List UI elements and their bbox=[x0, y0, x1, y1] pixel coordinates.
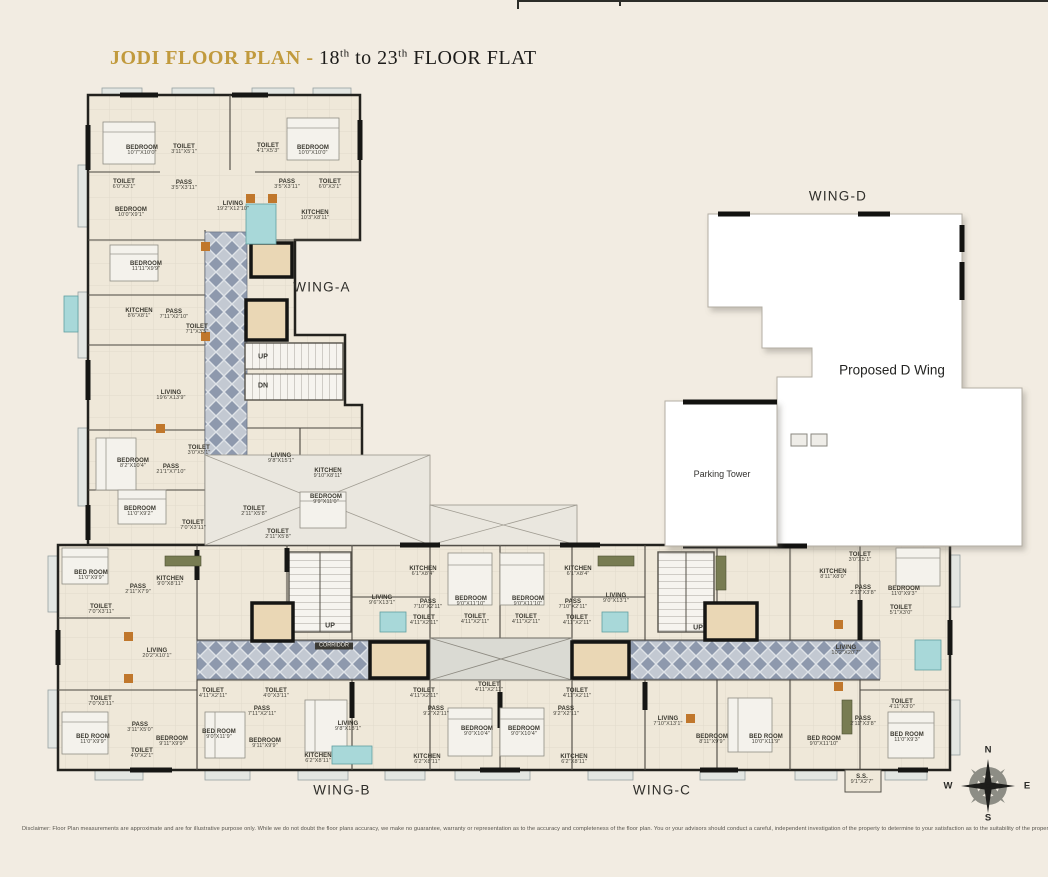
room-label: LIVING10'2"X20'7" bbox=[831, 645, 860, 657]
compass-east: E bbox=[1024, 781, 1030, 792]
room-label: TOILET4'11"X2'11" bbox=[512, 614, 540, 626]
compass-north: N bbox=[985, 745, 992, 756]
room-label: LIVING9'0"X13'1" bbox=[603, 593, 629, 605]
room-label: KITCHEN6'1"X8'4" bbox=[564, 566, 591, 578]
room-label: BEDROOM11'0"X9'3" bbox=[888, 586, 920, 598]
room-label: LIVING19'6"X13'9" bbox=[156, 390, 185, 402]
room-label: PASS3'5"X3'11" bbox=[274, 179, 300, 191]
room-label: BED ROOM11'0"X9'9" bbox=[76, 734, 110, 746]
room-label: TOILET7'0"X3'11" bbox=[88, 604, 114, 616]
room-label: KITCHEN6'2"X8'11" bbox=[560, 754, 587, 766]
room-label: TOILET4'11"X2'11" bbox=[563, 615, 591, 627]
room-label: BEDROOM8'2"X10'4" bbox=[117, 458, 149, 470]
room-label: TOILET3'11"X5'1" bbox=[171, 144, 197, 156]
room-label: TOILET2'11"X5'8" bbox=[265, 529, 291, 541]
room-label: TOILET4'0"X3'11" bbox=[263, 688, 289, 700]
room-label: BEDROOM10'0"X10'0" bbox=[297, 145, 329, 157]
room-label: BEDROOM9'0"X10'4" bbox=[461, 726, 493, 738]
room-label: KITCHEN9'10"X8'11" bbox=[314, 468, 343, 480]
room-label: TOILET7'0"X3'11" bbox=[88, 696, 114, 708]
stairs-up-label: UP bbox=[258, 354, 268, 361]
room-label: LIVING19'2"X12'10" bbox=[217, 201, 249, 213]
room-label: LIVING7'10"X13'1" bbox=[653, 716, 682, 728]
stairs-up-label: UP bbox=[325, 623, 335, 630]
room-label: TOILET4'1"X5'3" bbox=[257, 143, 280, 155]
room-label: TOILET6'0"X3'1" bbox=[319, 179, 342, 191]
compass-south: S bbox=[985, 813, 991, 824]
room-label: LIVING9'6"X13'1" bbox=[369, 595, 395, 607]
compass-west: W bbox=[944, 781, 953, 792]
disclaimer-text: Disclaimer: Floor Plan measurements are … bbox=[22, 826, 1048, 832]
room-label: BEDROOM11'11"X9'9" bbox=[130, 261, 162, 273]
room-label: BED ROOM9'0"X11'10" bbox=[807, 736, 841, 748]
room-label: TOILET4'11"X2'11" bbox=[563, 688, 591, 700]
room-label: BEDROOM11'0"X9'2" bbox=[124, 506, 156, 518]
room-label: KITCHEN6'2"X8'11" bbox=[304, 753, 331, 765]
room-label: PASS2'11"X7'9" bbox=[125, 584, 151, 596]
room-label: TOILET7'0"X3'11" bbox=[180, 520, 206, 532]
room-label: BEDROOM9'9"X11'0" bbox=[310, 494, 342, 506]
room-label: PASS21'1"X7'10" bbox=[156, 464, 185, 476]
room-label: BED ROOM11'0"X9'9" bbox=[74, 570, 108, 582]
room-label: PASS2'11"X3'8" bbox=[850, 716, 876, 728]
room-label: KITCHEN6'2"X8'11" bbox=[413, 754, 440, 766]
room-label: BEDROOM9'11"X9'9" bbox=[249, 738, 281, 750]
room-label: TOILET5'1"X3'0" bbox=[890, 605, 913, 617]
wing-a-label: WING-A bbox=[293, 280, 350, 295]
room-label: LIVING9'8"X13'1" bbox=[335, 721, 361, 733]
room-label: TOILET4'11"X2'11" bbox=[410, 615, 438, 627]
room-label: TOILET3'0"X5'1" bbox=[188, 445, 211, 457]
room-label: TOILET4'11"X2'11" bbox=[475, 682, 503, 694]
wing-c-label: WING-C bbox=[633, 783, 691, 798]
room-label: BEDROOM9'0"X10'4" bbox=[508, 726, 540, 738]
room-label: KITCHEN9'0"X8'11" bbox=[156, 576, 183, 588]
room-label: LIVING9'8"X15'1" bbox=[268, 453, 294, 465]
room-label: TOILET4'0"X2'1" bbox=[131, 748, 154, 760]
room-label: BEDROOM10'7"X10'0" bbox=[126, 145, 158, 157]
room-label: TOILET7'1"X3'5" bbox=[186, 324, 209, 336]
room-label: TOILET4'11"X2'11" bbox=[199, 688, 227, 700]
room-label: BED ROOM10'0"X11'9" bbox=[749, 734, 783, 746]
room-label: KITCHEN8'11"X8'0" bbox=[819, 569, 846, 581]
room-label: S.S.9'1"X2'7" bbox=[851, 774, 874, 786]
room-label: TOILET4'11"X3'0" bbox=[889, 699, 915, 711]
room-label: PASS7'10"X2'11" bbox=[414, 599, 443, 611]
room-label: BEDROOM9'0"X11'10" bbox=[455, 596, 487, 608]
parking-tower-label: Parking Tower bbox=[694, 469, 751, 479]
wing-d-label: WING-D bbox=[809, 189, 867, 204]
room-label: PASS7'11"X2'11" bbox=[248, 706, 276, 718]
room-label: TOILET6'0"X3'1" bbox=[113, 179, 136, 191]
room-label: BEDROOM8'11"X9'9" bbox=[696, 734, 728, 746]
room-label: PASS9'2"X2'11" bbox=[423, 706, 449, 718]
room-label: BEDROOM9'11"X9'9" bbox=[156, 736, 188, 748]
room-label: KITCHEN10'3"X8'11" bbox=[301, 210, 330, 222]
room-label: PASS3'11"X5'0" bbox=[127, 722, 153, 734]
floor-plan-page: JODI FLOOR PLAN - 18th to 23th FLOOR FLA… bbox=[0, 0, 1048, 877]
room-label: PASS2'11"X3'8" bbox=[850, 585, 876, 597]
plan-labels: WING-AWING-BWING-CWING-DProposed D WingP… bbox=[0, 0, 1048, 877]
room-label: PASS7'11"X2'10" bbox=[160, 309, 189, 321]
room-label: TOILET4'11"X2'11" bbox=[461, 614, 489, 626]
stairs-up-label: UP bbox=[693, 625, 703, 632]
wing-b-label: WING-B bbox=[313, 783, 370, 798]
room-label: LIVING20'2"X10'1" bbox=[142, 648, 171, 660]
proposed-d-wing-label: Proposed D Wing bbox=[839, 363, 945, 378]
room-label: TOILET4'11"X2'11" bbox=[410, 688, 438, 700]
room-label: BEDROOM9'0"X11'10" bbox=[512, 596, 544, 608]
room-label: PASS7'10"X2'11" bbox=[559, 599, 588, 611]
room-label: BED ROOM11'0"X9'3" bbox=[890, 732, 924, 744]
room-label: BED ROOM9'0"X11'9" bbox=[202, 729, 236, 741]
room-label: TOILET2'11"X5'8" bbox=[241, 506, 267, 518]
room-label: TOILET3'0"X5'1" bbox=[849, 552, 872, 564]
corridor-label: CORRIDOR bbox=[315, 643, 353, 650]
room-label: KITCHEN6'1"X8'4" bbox=[409, 566, 436, 578]
room-label: PASS3'5"X3'11" bbox=[171, 180, 197, 192]
room-label: PASS9'2"X2'11" bbox=[553, 706, 579, 718]
stairs-dn-label: DN bbox=[258, 383, 268, 390]
room-label: BEDROOM10'0"X9'1" bbox=[115, 207, 147, 219]
room-label: KITCHEN8'6"X8'1" bbox=[125, 308, 152, 320]
